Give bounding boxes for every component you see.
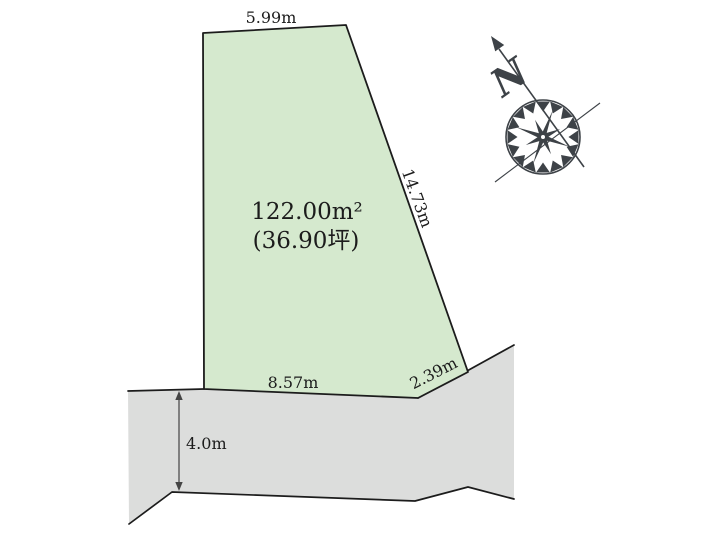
compass-rose-icon: N <box>481 36 600 182</box>
compass-hub-center <box>541 135 545 139</box>
land-plot-diagram: N 5.99m 14.73m 8.57m 2.39m 4.0m 122.00m²… <box>0 0 720 540</box>
site-plan-svg: N 5.99m 14.73m 8.57m 2.39m 4.0m 122.00m²… <box>0 0 720 540</box>
road-width-label: 4.0m <box>186 434 227 453</box>
parcel-tsubo-label: (36.90坪) <box>253 228 360 254</box>
top-edge-dimension-label: 5.99m <box>246 8 297 27</box>
bottom-edge-dimension-label: 8.57m <box>268 373 319 392</box>
compass-north-label: N <box>481 48 537 106</box>
parcel-area-label: 122.00m² <box>251 199 363 225</box>
north-arrow-head-icon <box>491 36 504 51</box>
